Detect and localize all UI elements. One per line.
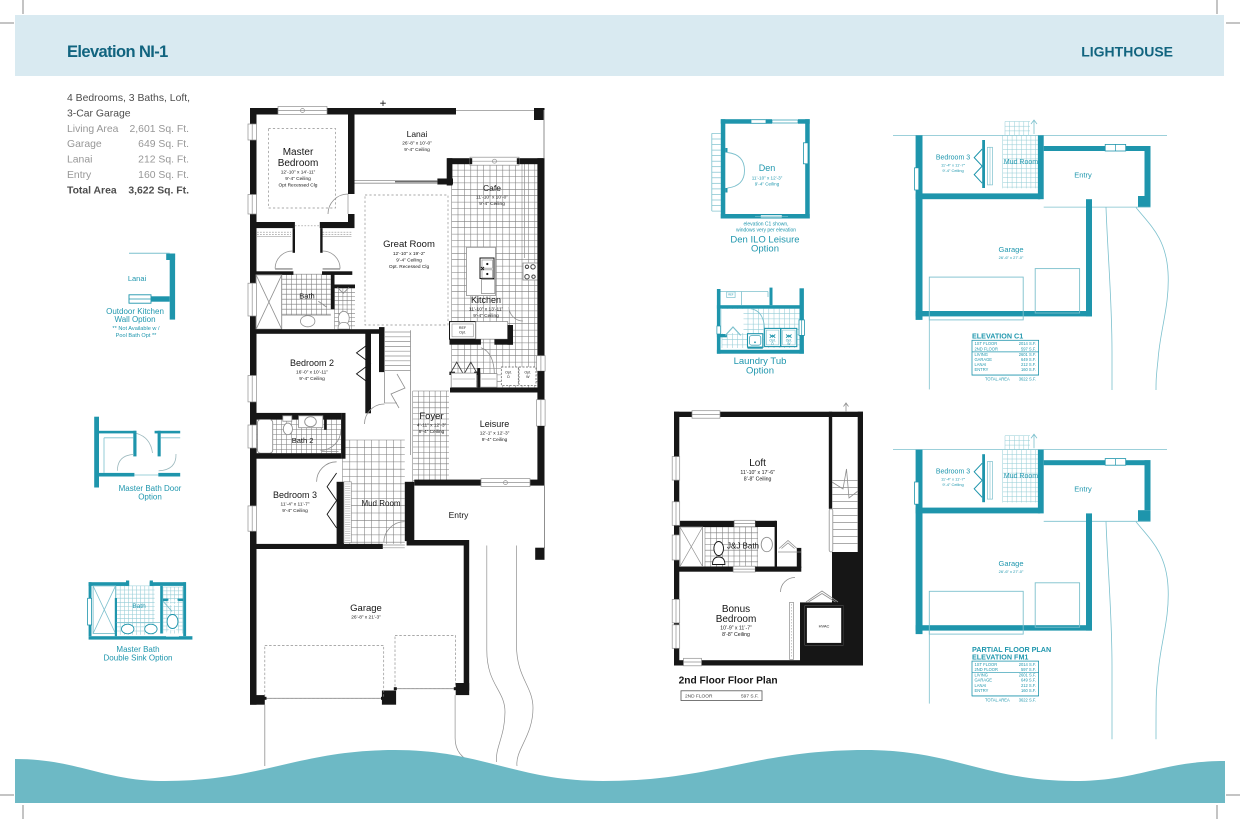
svg-text:Opt.: Opt. xyxy=(524,371,531,375)
svg-text:Kitchen: Kitchen xyxy=(471,295,501,305)
svg-text:9’-4” Ceiling: 9’-4” Ceiling xyxy=(419,429,445,435)
svg-text:Great Room: Great Room xyxy=(383,239,435,250)
svg-text:9’-4” Ceiling: 9’-4” Ceiling xyxy=(942,482,963,487)
svg-text:3,622 Sq. Ft.: 3,622 Sq. Ft. xyxy=(128,185,189,196)
svg-text:REF: REF xyxy=(459,326,467,330)
svg-text:REF: REF xyxy=(728,292,734,296)
svg-text:Entry: Entry xyxy=(1074,171,1092,180)
svg-text:Mud Room: Mud Room xyxy=(1004,159,1038,166)
svg-text:Pool Bath Opt **: Pool Bath Opt ** xyxy=(116,333,158,339)
svg-text:9’-4” Ceiling: 9’-4” Ceiling xyxy=(479,201,505,207)
svg-text:3-Car Garage: 3-Car Garage xyxy=(67,108,131,119)
svg-text:Bath: Bath xyxy=(299,292,314,301)
svg-text:TOTAL AREA: TOTAL AREA xyxy=(985,697,1010,702)
svg-text:Den: Den xyxy=(759,163,776,173)
svg-text:Total Area: Total Area xyxy=(67,185,117,196)
svg-text:2,601 Sq. Ft.: 2,601 Sq. Ft. xyxy=(130,124,190,135)
svg-text:9’-4” Ceiling: 9’-4” Ceiling xyxy=(482,437,508,443)
svg-text:Entry: Entry xyxy=(67,170,92,181)
svg-text:9’-4” Ceiling: 9’-4” Ceiling xyxy=(755,182,780,187)
svg-text:Double Sink Option: Double Sink Option xyxy=(104,654,173,663)
svg-text:HVAC: HVAC xyxy=(819,624,830,629)
svg-text:8’-8” Ceiling: 8’-8” Ceiling xyxy=(722,632,750,638)
svg-text:26’-6” x 27’-0”: 26’-6” x 27’-0” xyxy=(999,569,1024,574)
svg-text:** Not Available w /: ** Not Available w / xyxy=(112,326,160,332)
svg-text:Garage: Garage xyxy=(350,603,382,614)
svg-text:Leisure: Leisure xyxy=(480,419,510,429)
svg-text:160 Sq. Ft.: 160 Sq. Ft. xyxy=(138,170,189,181)
svg-text:11’-4” x 11’-7”: 11’-4” x 11’-7” xyxy=(941,477,966,482)
svg-text:Foyer: Foyer xyxy=(419,411,443,422)
svg-text:ENTRY: ENTRY xyxy=(975,367,989,372)
svg-text:Garage: Garage xyxy=(998,559,1023,568)
svg-text:D: D xyxy=(507,375,510,379)
svg-text:12’-1” x 12’-3”: 12’-1” x 12’-3” xyxy=(480,431,510,437)
svg-text:3622 S.F.: 3622 S.F. xyxy=(1019,377,1036,382)
svg-text:Bedroom 3: Bedroom 3 xyxy=(936,469,970,476)
svg-text:11’-10” x 12’-3”: 11’-10” x 12’-3” xyxy=(752,176,783,181)
svg-text:Cafe: Cafe xyxy=(483,183,501,193)
svg-text:Option: Option xyxy=(746,366,774,377)
svg-text:9’-4” Ceiling: 9’-4” Ceiling xyxy=(396,258,422,264)
svg-text:4’-11” x 12’-3”: 4’-11” x 12’-3” xyxy=(417,423,447,429)
svg-text:Bath: Bath xyxy=(132,603,146,610)
svg-text:2ND FLOOR: 2ND FLOOR xyxy=(975,346,998,351)
svg-text:Bath 2: Bath 2 xyxy=(292,436,314,445)
svg-text:ELEVATION FM1: ELEVATION FM1 xyxy=(972,652,1028,661)
svg-text:212 Sq. Ft.: 212 Sq. Ft. xyxy=(138,155,189,166)
svg-text:Bedroom 3: Bedroom 3 xyxy=(273,490,317,500)
svg-text:2nd Floor Floor Plan: 2nd Floor Floor Plan xyxy=(679,676,778,687)
svg-text:Option: Option xyxy=(138,493,162,502)
svg-text:12’-10” x 19’-2”: 12’-10” x 19’-2” xyxy=(393,251,426,257)
svg-text:4 Bedrooms, 3 Baths, Loft,: 4 Bedrooms, 3 Baths, Loft, xyxy=(67,93,190,104)
svg-text:11’-4” x 11’-7”: 11’-4” x 11’-7” xyxy=(281,502,310,508)
svg-text:Opt.: Opt. xyxy=(505,371,512,375)
svg-text:9’-4” Ceiling: 9’-4” Ceiling xyxy=(299,376,325,382)
svg-text:Entry: Entry xyxy=(449,510,470,520)
svg-text:Opt Recessed Clg: Opt Recessed Clg xyxy=(279,183,318,189)
svg-text:Opt. Recessed Clg: Opt. Recessed Clg xyxy=(389,264,430,270)
svg-text:9’-4” Ceiling: 9’-4” Ceiling xyxy=(473,313,499,319)
svg-text:597 S.F.: 597 S.F. xyxy=(1021,346,1036,351)
svg-text:2ND FLOOR: 2ND FLOOR xyxy=(685,694,713,700)
svg-text:9’-4” Ceiling: 9’-4” Ceiling xyxy=(285,176,311,182)
svg-text:Bedroom 3: Bedroom 3 xyxy=(936,155,970,162)
svg-text:16’-0” x 10’-11”: 16’-0” x 10’-11” xyxy=(296,370,328,376)
svg-text:Bedroom: Bedroom xyxy=(278,158,319,169)
svg-text:8’-8” Ceiling: 8’-8” Ceiling xyxy=(744,477,772,483)
svg-text:12’-10” x 14’-11”: 12’-10” x 14’-11” xyxy=(281,170,316,176)
svg-text:ENTRY: ENTRY xyxy=(975,688,989,693)
svg-text:11’-10” x 10’-0”: 11’-10” x 10’-0” xyxy=(476,195,508,201)
svg-text:160 S.F.: 160 S.F. xyxy=(1021,688,1036,693)
svg-text:Garage: Garage xyxy=(998,245,1023,254)
svg-text:Lanai: Lanai xyxy=(407,129,428,139)
svg-text:Bedroom 2: Bedroom 2 xyxy=(290,358,334,368)
svg-text:LIGHTHOUSE: LIGHTHOUSE xyxy=(1081,44,1173,60)
svg-text:2ND FLOOR: 2ND FLOOR xyxy=(975,667,998,672)
svg-text:windows very per elevation: windows very per elevation xyxy=(736,228,796,234)
svg-text:Option: Option xyxy=(751,244,779,255)
svg-text:Entry: Entry xyxy=(1074,485,1092,494)
svg-text:Opt.: Opt. xyxy=(459,330,466,334)
svg-text:Mud Room: Mud Room xyxy=(1004,473,1038,480)
svg-text:11’-4” x 11’-7”: 11’-4” x 11’-7” xyxy=(941,163,966,168)
svg-text:3622 S.F.: 3622 S.F. xyxy=(1019,697,1036,702)
svg-text:649 Sq. Ft.: 649 Sq. Ft. xyxy=(138,139,189,150)
svg-text:9’-4” Ceiling: 9’-4” Ceiling xyxy=(404,147,430,153)
svg-text:Wall Option: Wall Option xyxy=(114,315,155,324)
svg-text:TOTAL AREA: TOTAL AREA xyxy=(985,377,1010,382)
svg-text:160 S.F.: 160 S.F. xyxy=(1021,367,1036,372)
svg-text:11’-10” x 17’-6”: 11’-10” x 17’-6” xyxy=(740,470,775,476)
svg-text:W: W xyxy=(526,375,530,379)
svg-text:Bedroom: Bedroom xyxy=(716,614,757,625)
svg-text:Living Area: Living Area xyxy=(67,124,119,135)
svg-text:26’-8” x 10’-0”: 26’-8” x 10’-0” xyxy=(402,141,432,147)
svg-text:ELEVATION C1: ELEVATION C1 xyxy=(972,332,1023,341)
svg-text:Loft: Loft xyxy=(749,458,766,469)
svg-text:J&J Bath: J&J Bath xyxy=(727,542,759,551)
svg-text:Lanai: Lanai xyxy=(67,155,92,166)
svg-text:26’-8” x 21’-3”: 26’-8” x 21’-3” xyxy=(351,615,381,621)
svg-text:Garage: Garage xyxy=(67,139,102,150)
svg-text:11’-10” x 13’-11”: 11’-10” x 13’-11” xyxy=(469,307,504,313)
svg-text:9’-4” Ceiling: 9’-4” Ceiling xyxy=(282,508,308,514)
svg-text:9’-4” Ceiling: 9’-4” Ceiling xyxy=(942,168,963,173)
svg-text:26’-6” x 27’-0”: 26’-6” x 27’-0” xyxy=(999,255,1024,260)
svg-text:10’-9” x 11’-7”: 10’-9” x 11’-7” xyxy=(720,626,752,632)
svg-text:597 S.F.: 597 S.F. xyxy=(741,694,759,700)
svg-text:597 S.F.: 597 S.F. xyxy=(1021,667,1036,672)
svg-text:Master: Master xyxy=(283,147,314,158)
svg-text:Mud Room: Mud Room xyxy=(361,499,400,508)
svg-text:Lanai: Lanai xyxy=(128,274,147,283)
svg-text:Elevation NI-1: Elevation NI-1 xyxy=(67,43,168,61)
